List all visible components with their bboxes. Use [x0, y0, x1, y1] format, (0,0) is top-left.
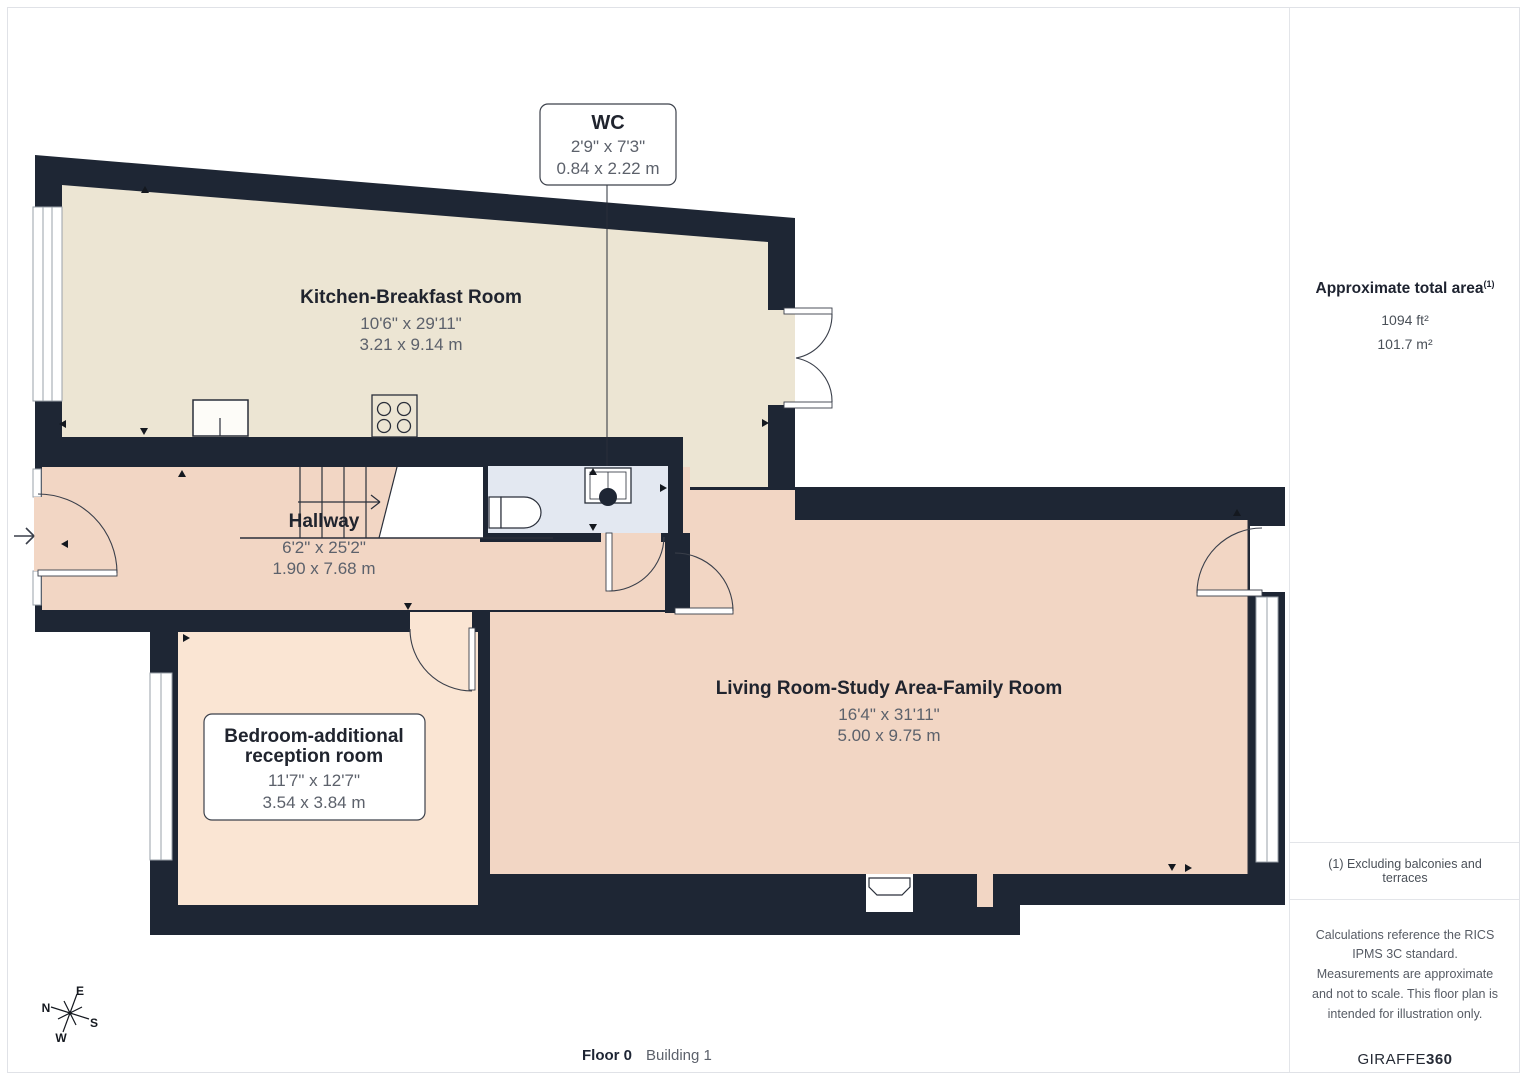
floor-label: Floor 0	[582, 1047, 632, 1064]
info-sidebar: Approximate total area(1) 1094 ft² 101.7…	[1289, 8, 1520, 1072]
footer: Floor 0 Building 1	[582, 1047, 712, 1064]
bedroom-door-gap	[410, 612, 472, 632]
kitchen-sink-icon	[193, 400, 248, 436]
living-metric: 5.00 x 9.75 m	[837, 726, 940, 745]
wc-metric: 0.84 x 2.22 m	[556, 159, 659, 178]
brand-bold: 360	[1426, 1051, 1453, 1068]
compass-e: E	[76, 984, 84, 998]
hallway-name: Hallway	[289, 511, 360, 532]
wc-imperial: 2'9" x 7'3"	[571, 137, 645, 156]
wc-name: WC	[591, 112, 624, 134]
kitchen-metric: 3.21 x 9.14 m	[359, 335, 462, 354]
bedroom-metric: 3.54 x 3.84 m	[262, 793, 365, 812]
kitchen-imperial: 10'6" x 29'11"	[360, 314, 461, 333]
area-ft-value: 1094 ft²	[1316, 312, 1495, 328]
living-name: Living Room-Study Area-Family Room	[716, 678, 1063, 699]
total-area-title: Approximate total area(1)	[1316, 279, 1495, 298]
bedroom-name-line2: reception room	[245, 746, 383, 767]
kitchen-french-doors	[766, 308, 832, 408]
entry-arrow-icon	[14, 528, 34, 544]
compass-icon: N E S W	[42, 984, 98, 1045]
total-area-section: Approximate total area(1) 1094 ft² 101.7…	[1290, 8, 1520, 842]
bedroom-imperial: 11'7" x 12'7"	[268, 771, 360, 790]
kitchen-window	[33, 207, 62, 401]
compass-n: N	[42, 1001, 51, 1015]
bedroom-label-box: Bedroom-additional reception room 11'7" …	[204, 714, 425, 820]
kitchen-name: Kitchen-Breakfast Room	[300, 287, 522, 308]
disclaimer-text: Calculations reference the RICS IPMS 3C …	[1312, 926, 1498, 1025]
hallway-imperial: 6'2" x 25'2"	[282, 538, 366, 557]
toilet-icon	[489, 497, 541, 528]
brand-regular: GIRAFFE	[1357, 1051, 1426, 1068]
compass-s: S	[90, 1016, 98, 1030]
brand-logo: GIRAFFE360	[1312, 1048, 1498, 1072]
floorplan-page: WC 2'9" x 7'3" 0.84 x 2.22 m Kitchen-Bre…	[0, 0, 1527, 1080]
building-label: Building 1	[646, 1047, 712, 1064]
disclaimer-section: Calculations reference the RICS IPMS 3C …	[1290, 900, 1520, 1072]
floorplan-drawing: WC 2'9" x 7'3" 0.84 x 2.22 m Kitchen-Bre…	[0, 0, 1285, 1080]
bedroom-name-line1: Bedroom-additional	[224, 726, 403, 747]
footnote-section: (1) Excluding balconies and terraces	[1290, 842, 1520, 899]
area-m-value: 101.7 m²	[1316, 336, 1495, 352]
living-imperial: 16'4" x 31'11"	[838, 705, 939, 724]
compass-w: W	[55, 1031, 67, 1045]
hallway-metric: 1.90 x 7.68 m	[272, 559, 375, 578]
stove-icon	[372, 395, 417, 437]
wc-label-box: WC 2'9" x 7'3" 0.84 x 2.22 m	[540, 104, 676, 185]
bedroom-window	[150, 673, 172, 860]
hallway-window-upper	[33, 469, 41, 497]
wall-hallway-living	[665, 533, 690, 613]
total-area-footnote-ref: (1)	[1483, 279, 1494, 289]
